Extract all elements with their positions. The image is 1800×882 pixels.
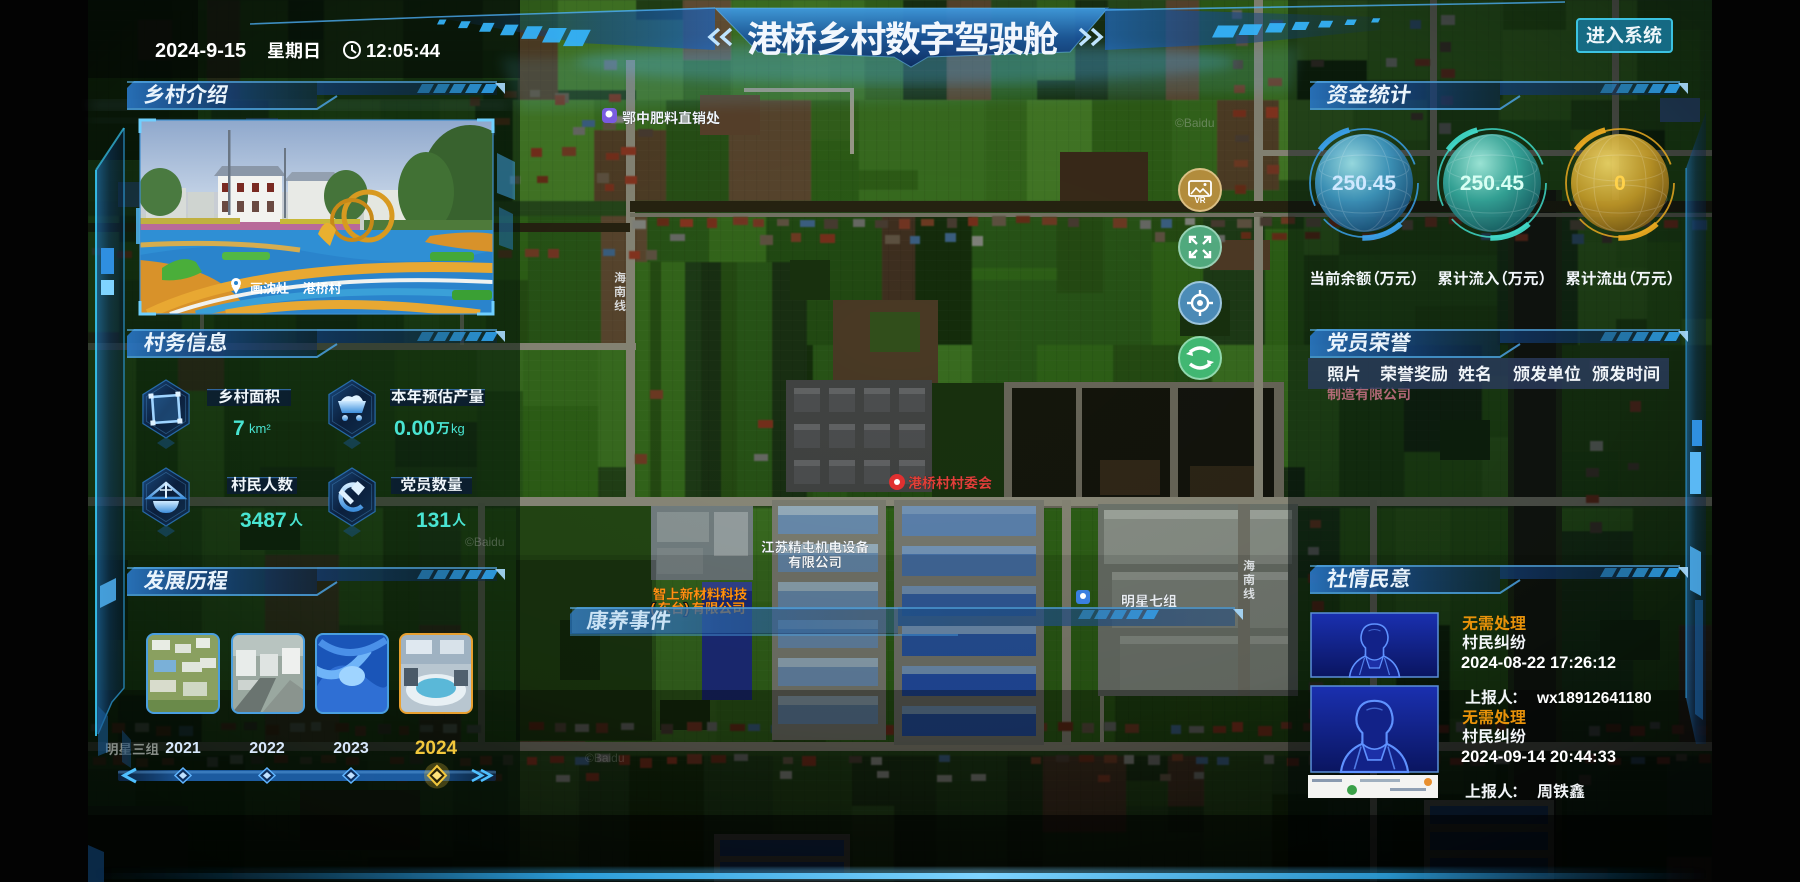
svg-text:2022: 2022 xyxy=(249,740,285,757)
svg-text:©Baidu: ©Baidu xyxy=(585,751,625,765)
svg-text:250.45: 250.45 xyxy=(1460,172,1525,195)
svg-text:©Baidu: ©Baidu xyxy=(465,535,505,549)
svg-text:kg: kg xyxy=(451,421,465,436)
svg-text:©Baidu: ©Baidu xyxy=(1175,116,1215,130)
svg-text:131: 131 xyxy=(416,509,451,532)
svg-text:2023: 2023 xyxy=(333,740,369,757)
svg-text:7: 7 xyxy=(233,417,245,440)
svg-text:VR: VR xyxy=(1194,196,1205,205)
svg-text:250.45: 250.45 xyxy=(1332,172,1397,195)
svg-text:wx18912641180: wx18912641180 xyxy=(1536,690,1652,707)
svg-text:2024: 2024 xyxy=(415,738,458,759)
svg-text:0: 0 xyxy=(1614,172,1626,195)
svg-text:2024-09-14 20:44:33: 2024-09-14 20:44:33 xyxy=(1461,748,1616,766)
svg-text:2024-08-22 17:26:12: 2024-08-22 17:26:12 xyxy=(1461,654,1616,672)
svg-text:2021: 2021 xyxy=(165,740,201,757)
svg-text:km²: km² xyxy=(249,421,271,436)
svg-text:0.00: 0.00 xyxy=(394,417,435,440)
svg-text:12:05:44: 12:05:44 xyxy=(366,40,441,61)
svg-text:2024-9-15: 2024-9-15 xyxy=(155,40,246,62)
svg-text:3487: 3487 xyxy=(240,509,287,532)
